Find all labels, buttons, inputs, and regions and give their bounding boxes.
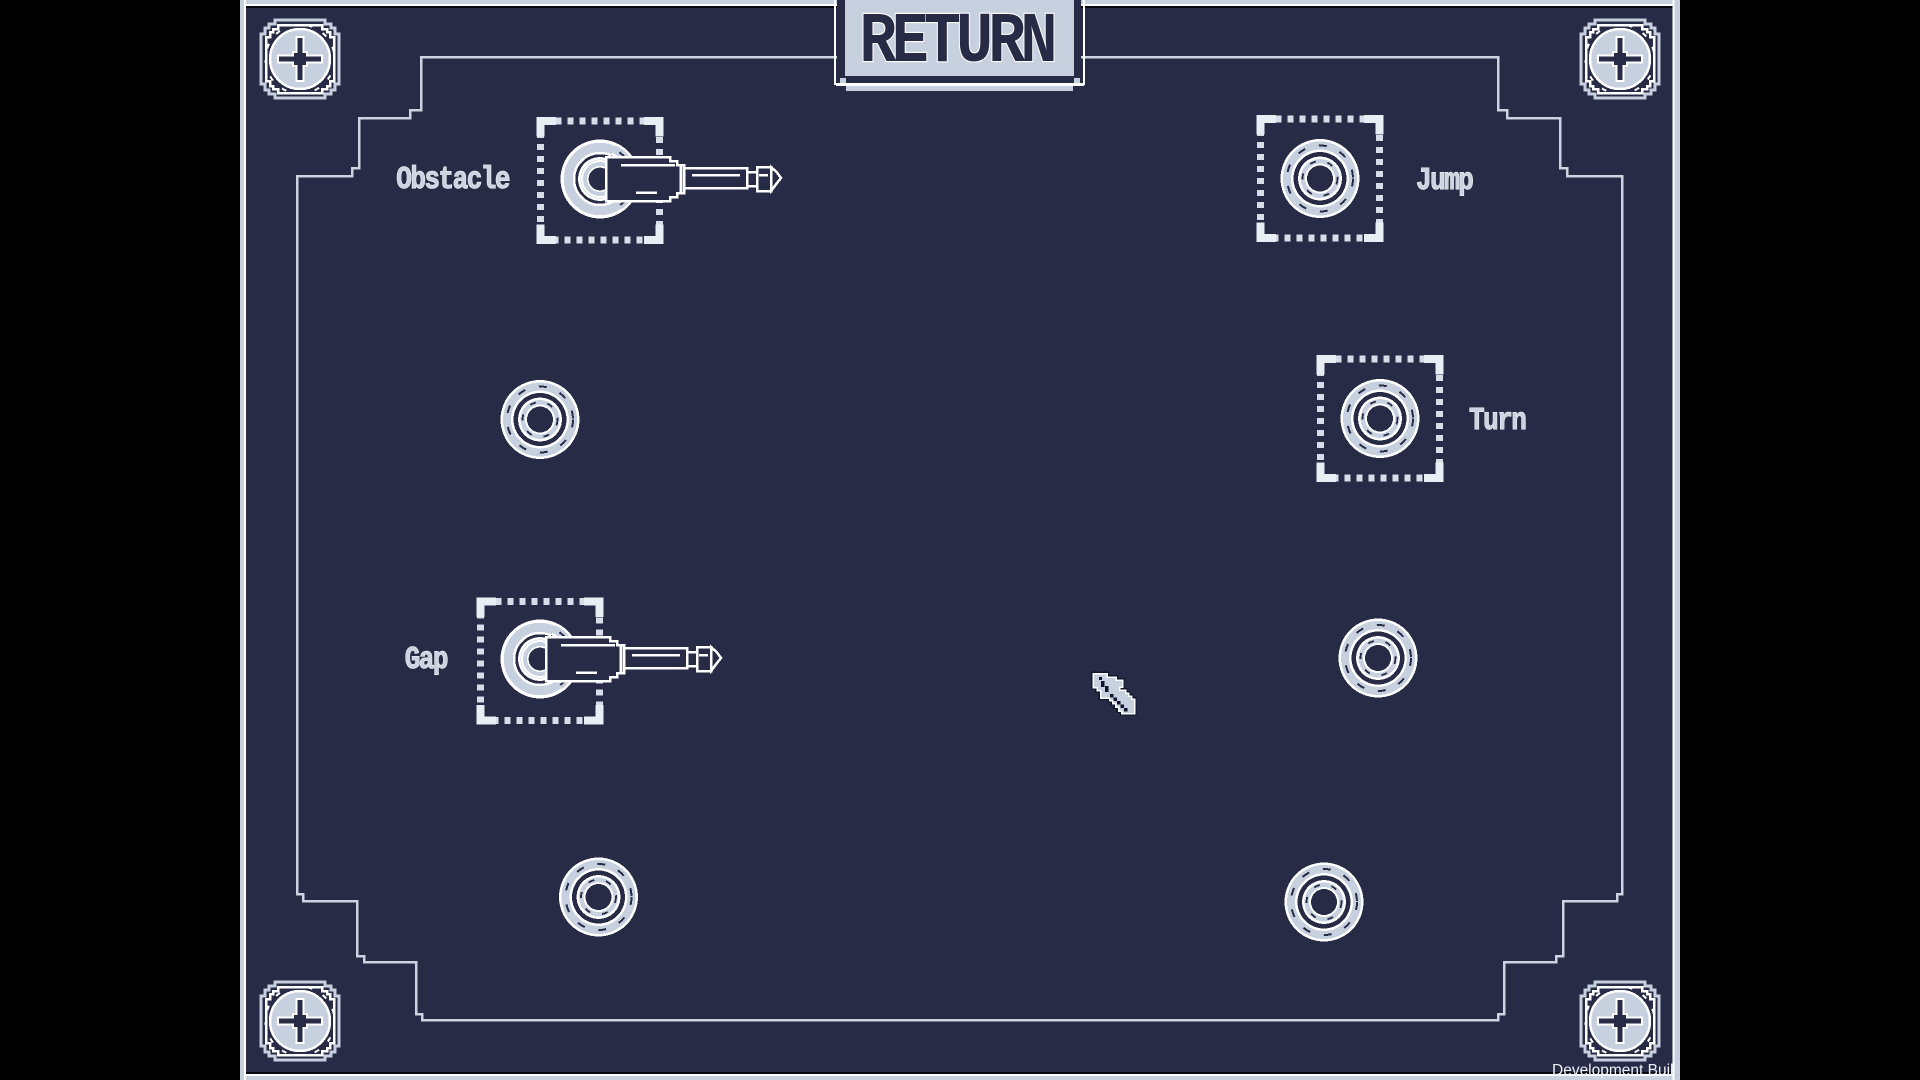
svg-text:Jump: Jump — [1416, 163, 1473, 199]
svg-text:Gap: Gap — [405, 642, 448, 678]
svg-text:RETURN: RETURN — [859, 2, 1053, 83]
svg-text:Turn: Turn — [1469, 403, 1526, 439]
svg-text:Development Build: Development Build — [1552, 1062, 1682, 1079]
svg-text:Obstacle: Obstacle — [396, 162, 509, 198]
